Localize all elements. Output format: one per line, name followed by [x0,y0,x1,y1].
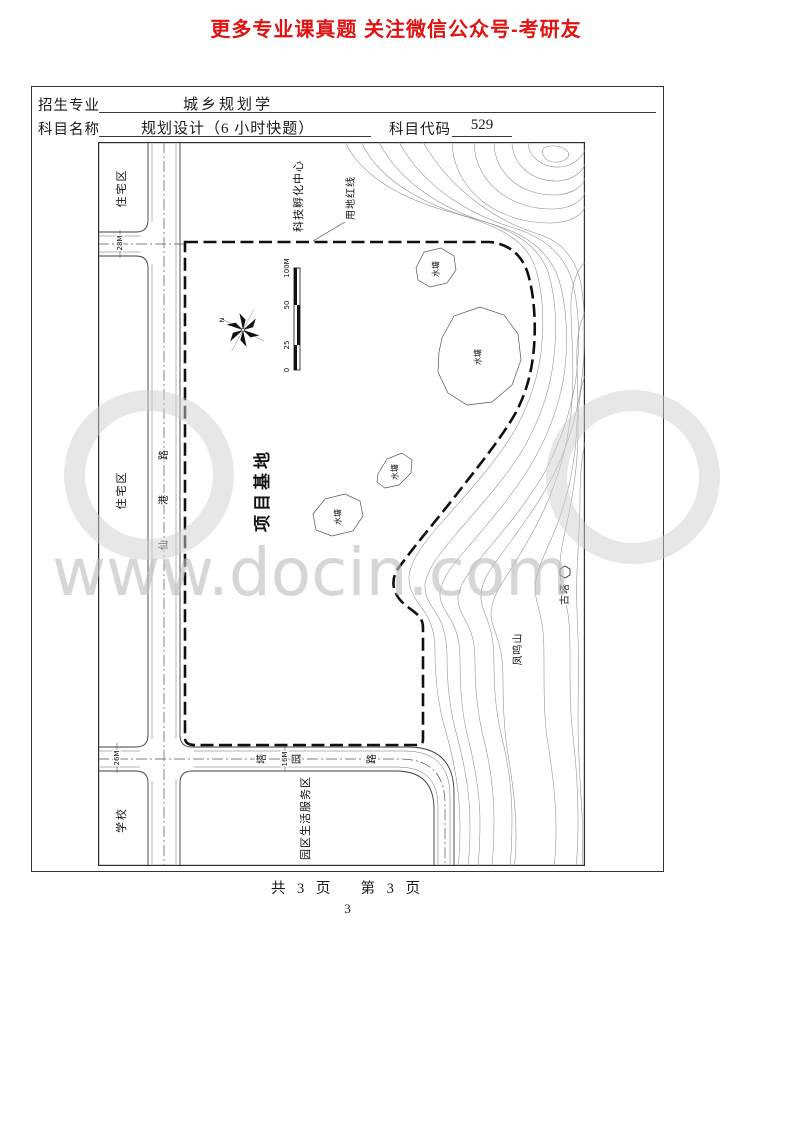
exam-page: { "header": { "promo": "更多专业课真题 关注微信公众号-… [0,0,792,1122]
subject-value: 规划设计（6 小时快题） [141,121,314,137]
pond-label: 水塘 [333,509,343,525]
major-underline: 城乡规划学 [99,93,656,113]
road-width-bottom: 16M [281,752,289,767]
site-label: 项目基地 [252,448,273,532]
major-label: 招生专业 [38,94,100,115]
boundary-label: 用地红线 [344,176,357,220]
pond-label: 水塘 [431,261,441,277]
scale-label-50: 50 [283,301,291,310]
road-h-char: 园 [291,754,303,764]
pond-label: 水塘 [473,349,483,365]
subject-label: 科目名称 [38,118,100,139]
footer-page-count: 共 3 页 第 3 页 [31,877,664,898]
code-value: 529 [471,117,494,133]
scale-label-0: 0 [283,368,291,372]
site-plan-svg: N 0 25 50 100M 住宅区 住宅区 学校 园区生活服务区 科技孵化中心… [98,142,585,866]
zone-school-label: 学校 [114,807,128,833]
subject-underline: 规划设计（6 小时快题） [99,117,371,137]
major-value: 城乡规划学 [183,97,273,113]
code-underline: 529 [452,117,512,137]
pond-label: 水塘 [390,464,400,480]
road-v-char: 仙 [157,540,170,550]
site-plan-map: N 0 25 50 100M 住宅区 住宅区 学校 园区生活服务区 科技孵化中心… [98,142,585,866]
road-v-char: 港 [158,495,170,505]
scale-label-100m: 100M [283,258,291,277]
mountain-label: 凤鸣山 [511,633,524,666]
zone-service-label: 园区生活服务区 [298,776,312,860]
pagoda-label: 古塔 [558,583,571,605]
road-v-char: 路 [157,450,170,460]
zone-residential-mid-label: 住宅区 [114,471,128,510]
compass-north-label: N [218,317,226,322]
promo-header: 更多专业课真题 关注微信公众号-考研友 [0,13,792,42]
road-h-char: 塔 [255,754,268,764]
pagoda-icon [560,566,570,578]
road-h-char: 路 [365,754,378,764]
zone-incubator-label: 科技孵化中心 [291,160,305,232]
road-width-left: 26M [113,751,121,766]
zone-residential-top-label: 住宅区 [114,169,128,208]
code-label: 科目代码 [389,118,451,139]
road-width-top: 28M [116,236,124,251]
scale-label-25: 25 [283,341,291,350]
page-number: 3 [31,901,664,917]
